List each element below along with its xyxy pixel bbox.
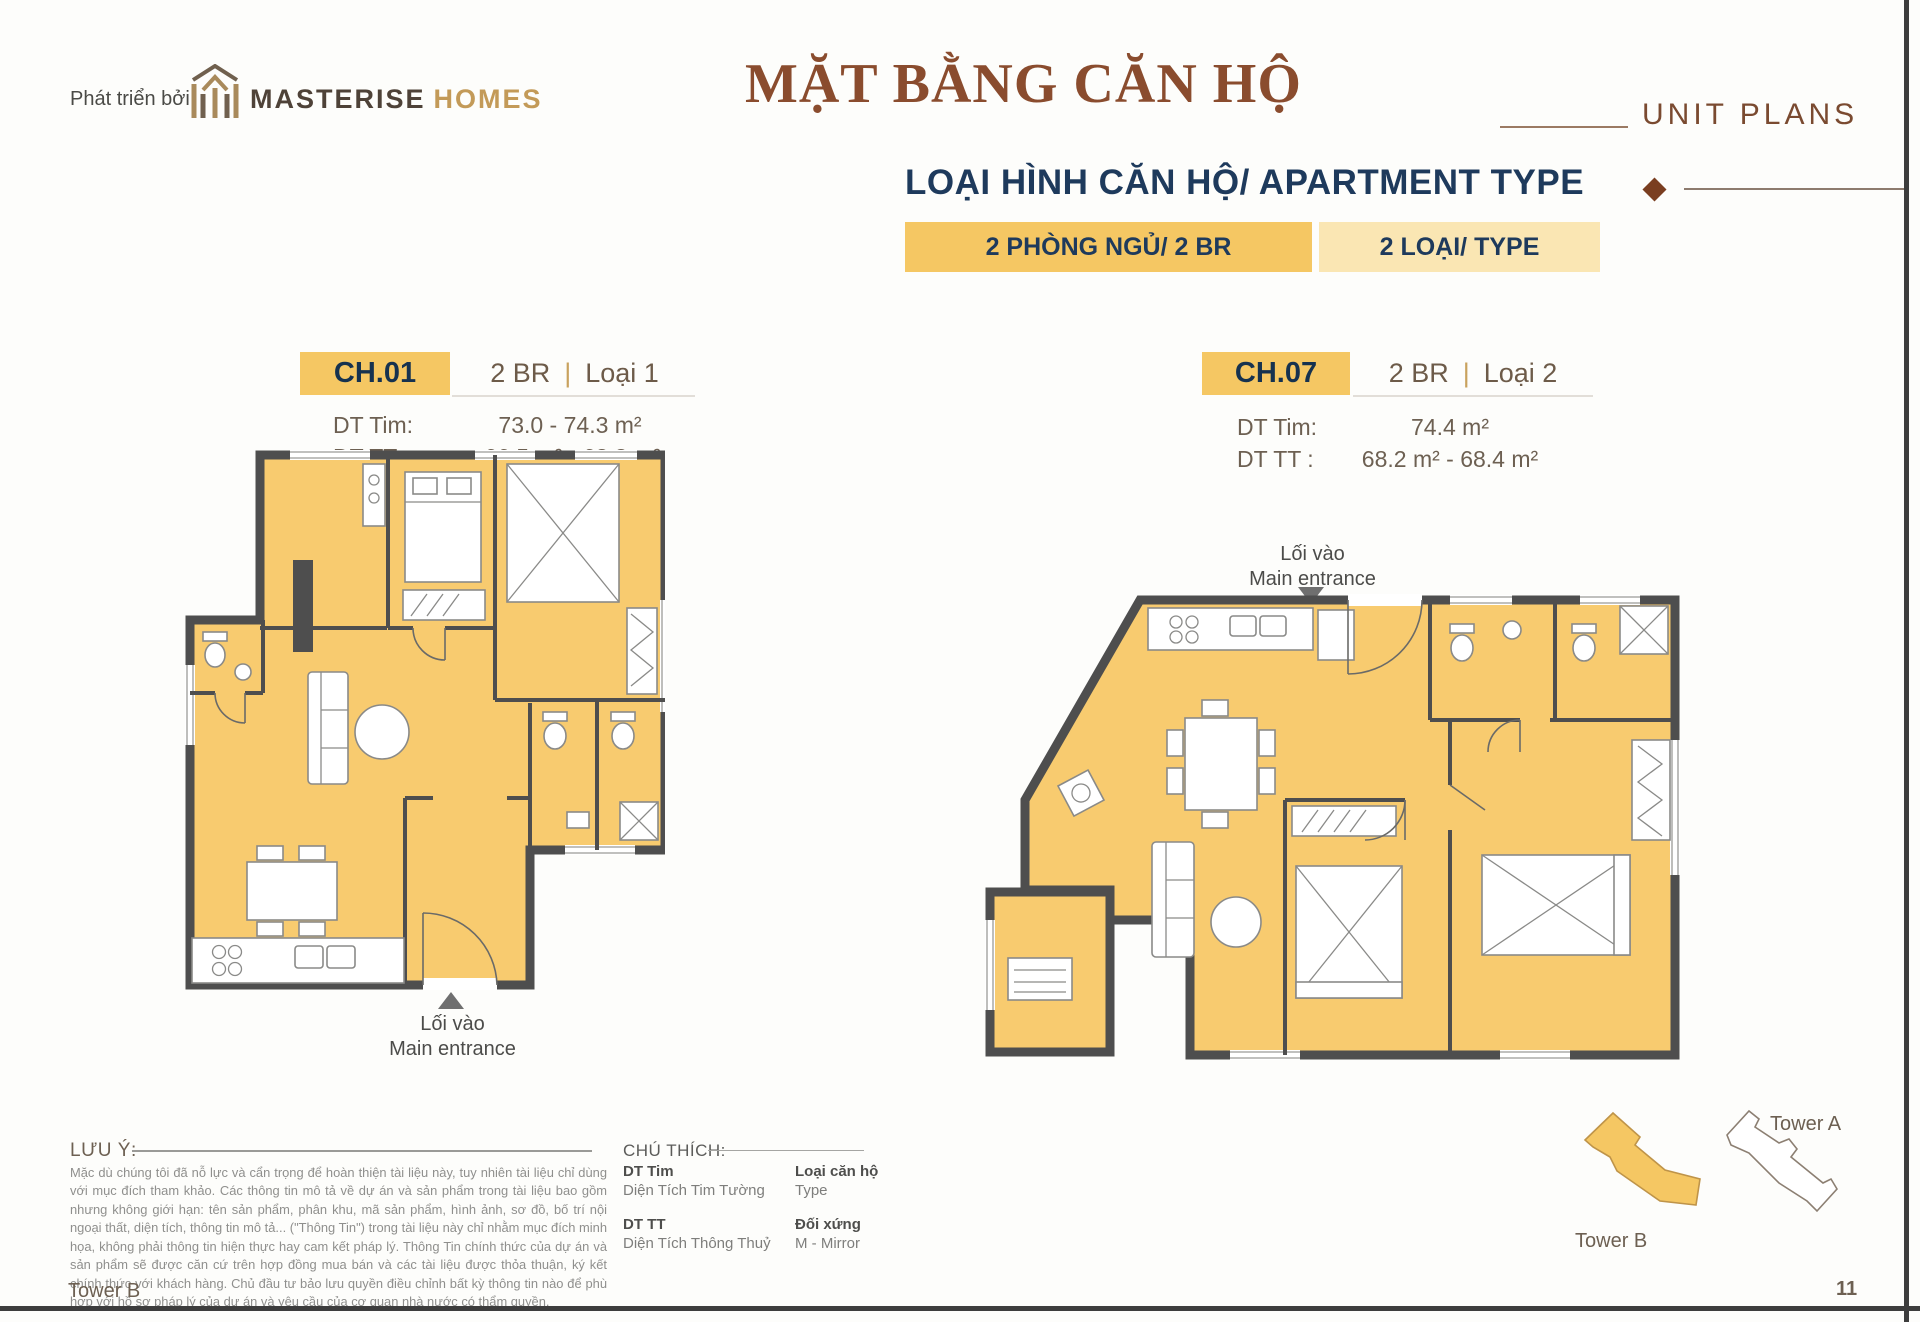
wardrobe-icon [1632, 740, 1670, 840]
unit-type-ch01: 2 BR | Loại 1 [452, 352, 697, 395]
dt-tim-label: DT Tim: [333, 412, 413, 439]
wardrobe-icon [403, 590, 485, 620]
legend-term: Đối xứng [795, 1216, 935, 1233]
title-divider-line [1500, 126, 1628, 128]
page-title-english: UNIT PLANS [1642, 98, 1858, 132]
legend-term: DT TT [623, 1216, 788, 1233]
unit-variant: Loại 1 [585, 358, 659, 389]
kitchen-counter-icon [192, 938, 404, 983]
diamond-icon [1642, 177, 1666, 201]
floor-plan-ch07 [980, 590, 1680, 1075]
legend-item: DT Tim Diện Tích Tim Tường [623, 1163, 788, 1199]
legend-term: DT Tim [623, 1163, 788, 1180]
balcony-cabinet-icon [363, 464, 385, 526]
divider-pipe: | [1463, 358, 1470, 389]
disclaimer-text: Mặc dù chúng tôi đã nỗ lực và cẩn trọng … [70, 1164, 607, 1312]
legend-item: Đối xứng M - Mirror [795, 1216, 935, 1252]
apartment-type-subtitle: LOẠI HÌNH CĂN HỘ/ APARTMENT TYPE [905, 163, 1584, 203]
entrance-en: Main entrance [350, 1037, 555, 1062]
unit-code-badge-ch07: CH.07 [1202, 352, 1350, 395]
legend-column: DT Tim Diện Tích Tim Tường DT TT Diện Tí… [623, 1163, 788, 1269]
tower-site-map: Tower A Tower B [1565, 1095, 1855, 1265]
legend-definition: Type [795, 1182, 935, 1199]
divider-pipe: | [564, 358, 571, 389]
entrance-vi: Lối vào [350, 1012, 555, 1037]
sofa-icon [308, 672, 348, 784]
page-number: 11 [1836, 1278, 1857, 1301]
legend-column: Loại căn hộ Type Đối xứng M - Mirror [795, 1163, 935, 1269]
masterise-logo-icon [190, 64, 240, 125]
dt-tim-label: DT Tim: [1237, 414, 1317, 441]
page-frame-right [1904, 0, 1909, 1322]
dt-tim-value: 74.4 m² [1330, 414, 1570, 441]
bed-icon [1482, 855, 1630, 955]
dt-tt-value: 68.2 m² - 68.4 m² [1330, 446, 1570, 473]
wardrobe-icon [627, 608, 657, 694]
entrance-arrow-icon [438, 992, 464, 1009]
notes-label: LƯU Ý: [70, 1140, 137, 1162]
legend-definition: Diện Tích Tim Tường [623, 1182, 788, 1199]
brochure-page: Phát triển bởi MASTERISEHOMES MẶT BẰNG C… [0, 0, 1920, 1322]
tower-b-shape [1585, 1113, 1700, 1205]
entrance-label-ch01: Lối vào Main entrance [350, 1012, 555, 1062]
legend-item: DT TT Diện Tích Thông Thuỷ [623, 1216, 788, 1252]
legend-item: Loại căn hộ Type [795, 1163, 935, 1199]
tower-b-label: Tower B [1575, 1230, 1647, 1252]
wardrobe-icon [1292, 806, 1396, 836]
dt-tt-label: DT TT : [1237, 446, 1314, 473]
unit-bed-type: 2 BR [490, 358, 550, 389]
brand-primary: MASTERISE [250, 84, 426, 114]
legend-divider-line [708, 1150, 864, 1151]
footer-tower-label: Tower B [68, 1280, 140, 1303]
bed-icon [507, 464, 619, 602]
unit-underline [1353, 395, 1593, 397]
tower-a-label: Tower A [1770, 1113, 1842, 1135]
entrance-vi: Lối vào [1210, 542, 1415, 567]
ac-unit-icon [1008, 958, 1072, 1000]
sofa-icon [1152, 842, 1194, 957]
unit-underline [452, 395, 695, 397]
legend-definition: Diện Tích Thông Thuỷ [623, 1235, 788, 1252]
unit-type-ch07: 2 BR | Loại 2 [1353, 352, 1593, 395]
page-title: MẶT BẰNG CĂN HỘ [745, 52, 1302, 116]
unit-code-badge-ch01: CH.01 [300, 352, 450, 395]
unit-bed-type: 2 BR [1389, 358, 1449, 389]
bed-icon [1296, 866, 1402, 998]
bed-icon [405, 472, 481, 582]
dt-tim-value: 73.0 - 74.3 m² [420, 412, 720, 439]
developer-label: Phát triển bởi [70, 88, 190, 111]
coffee-table-icon [1211, 897, 1261, 947]
coffee-table-icon [355, 705, 409, 759]
wall-pillar [293, 560, 313, 652]
notes-divider-line [132, 1150, 592, 1152]
page-frame-bottom [0, 1306, 1920, 1311]
legend-definition: M - Mirror [795, 1235, 935, 1252]
legend-term: Loại căn hộ [795, 1163, 935, 1180]
floor-plan-ch01 [175, 450, 665, 1000]
bedrooms-badge: 2 PHÒNG NGỦ/ 2 BR [905, 222, 1312, 272]
unit-variant: Loại 2 [1484, 358, 1558, 389]
brand-secondary: HOMES [434, 84, 543, 114]
subtitle-divider-line [1684, 188, 1906, 190]
entrance-label-ch07: Lối vào Main entrance [1210, 542, 1415, 592]
type-count-badge: 2 LOẠI/ TYPE [1319, 222, 1600, 272]
brand-wordmark: MASTERISEHOMES [250, 84, 543, 115]
